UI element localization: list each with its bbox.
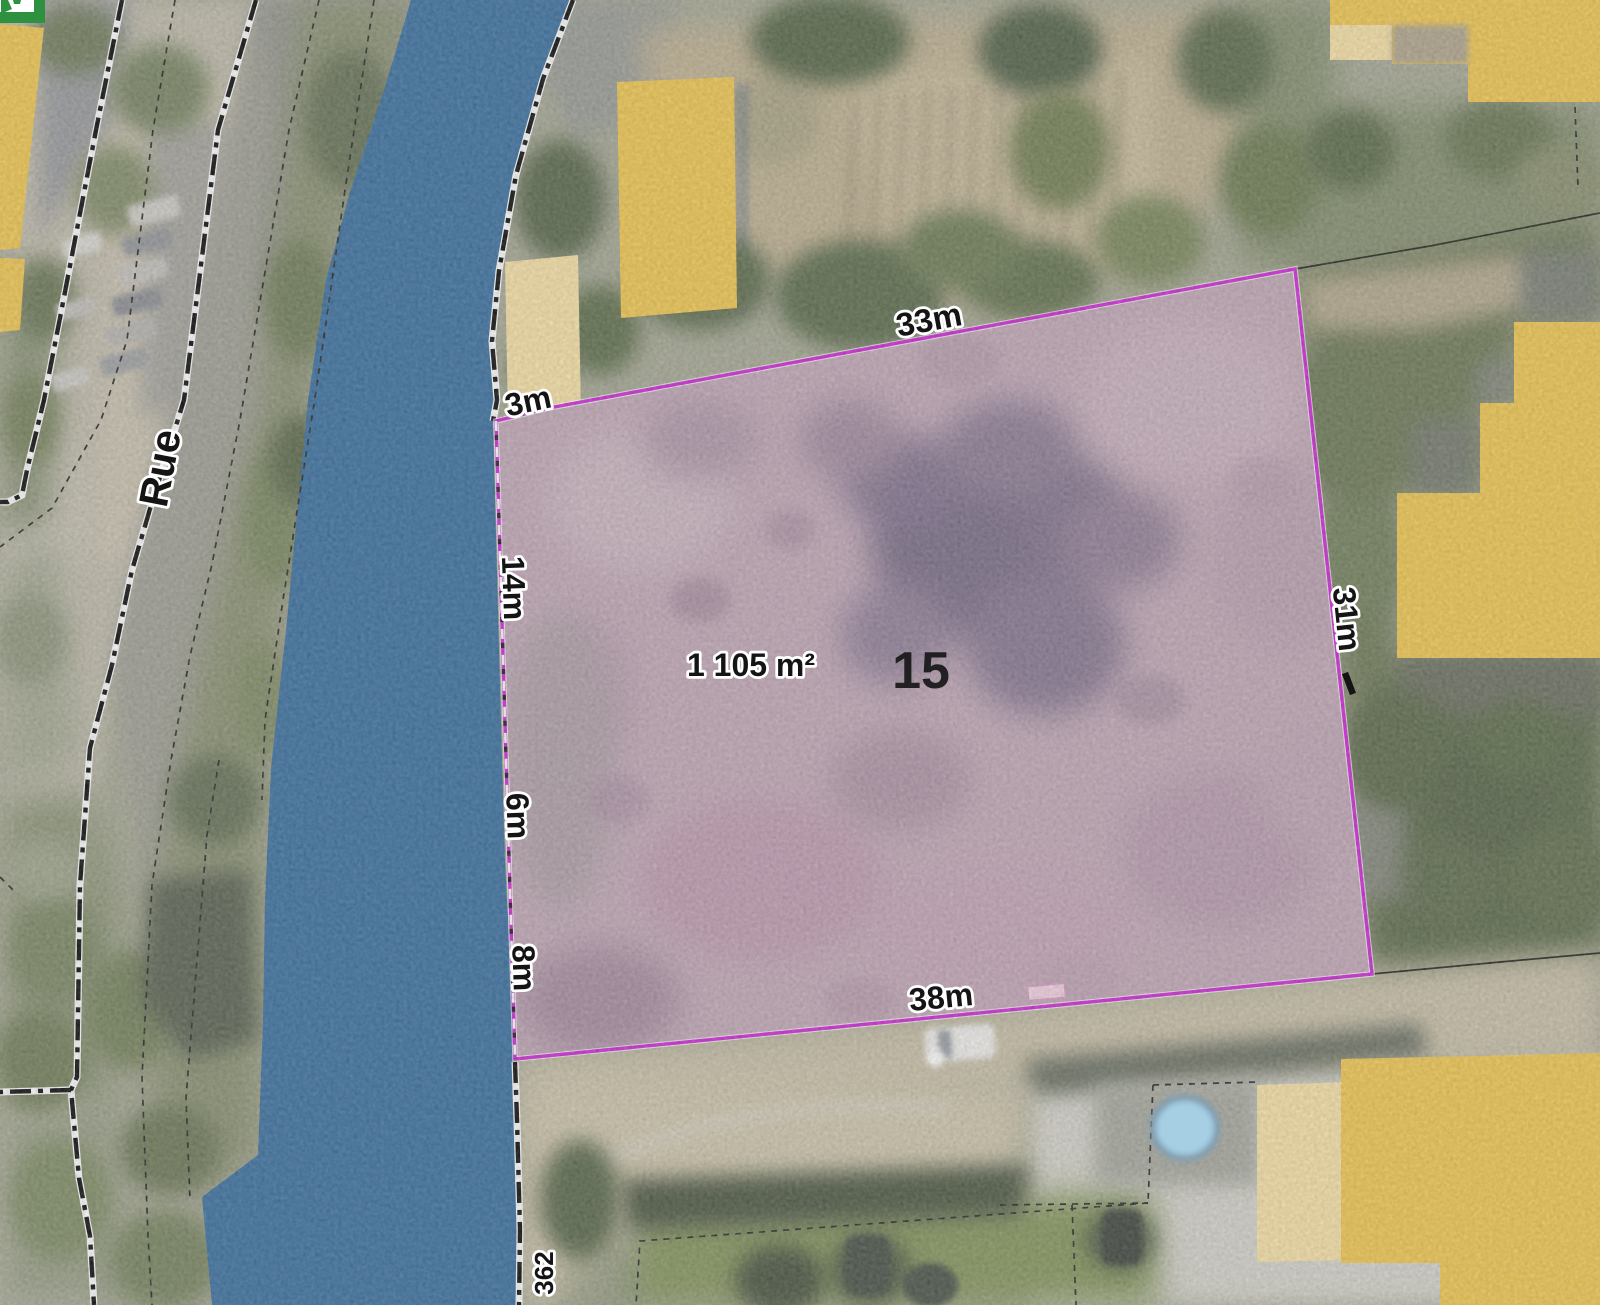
svg-text:15: 15: [892, 642, 950, 700]
svg-text:362: 362: [529, 1251, 559, 1294]
svg-text:6m: 6m: [499, 792, 537, 839]
svg-text:38m: 38m: [907, 976, 974, 1018]
svg-text:1 105 m²: 1 105 m²: [687, 647, 815, 683]
svg-text:31m: 31m: [1326, 585, 1368, 652]
svg-text:14m: 14m: [495, 555, 533, 620]
svg-text:8m: 8m: [505, 944, 543, 991]
